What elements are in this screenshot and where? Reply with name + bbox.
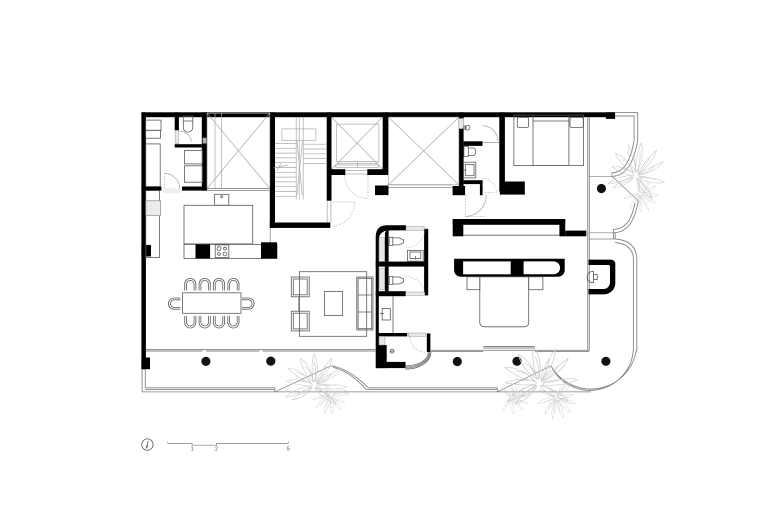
svg-text:2: 2 — [215, 447, 218, 453]
svg-text:1: 1 — [191, 447, 194, 453]
svg-text:5: 5 — [287, 447, 290, 453]
